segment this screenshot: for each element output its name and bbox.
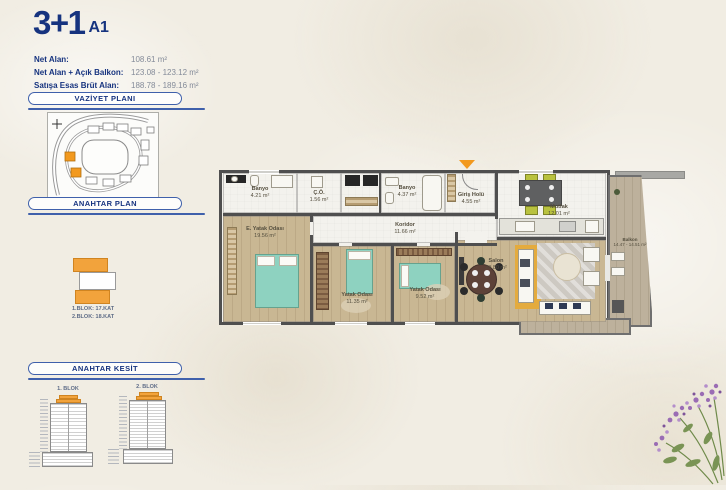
sofa-icon [518,249,534,303]
shelf-unit [345,197,378,206]
cushion [520,279,530,287]
window [405,322,435,326]
door-opening [310,222,313,235]
site-plan-drawing [48,113,158,197]
label-yatak1: Yatak Odası 11.35 m² [329,292,385,305]
wardrobe [316,252,329,310]
chair-icon [460,287,468,295]
wall [391,246,394,322]
pillow [279,256,297,266]
room-name: Mutfak [535,204,583,211]
label-e-yatak: E. Yatak Odası 19.56 m² [233,226,297,239]
dining-table-icon [519,180,562,206]
divider [28,213,205,215]
info-row-net-alan: Net Alan: 108.61 m² [34,53,199,66]
cooktop-icon [559,221,576,232]
plate-icon [484,282,490,288]
window [335,322,367,326]
room-area: 4.21 m² [235,193,285,200]
key-plan-caption: 1.BLOK: 17.KAT 2.BLOK: 18.KAT [72,306,114,322]
kitchen-sink-icon [515,221,535,232]
block1-podium-section [42,452,93,467]
window [249,170,279,174]
plate-icon [472,282,478,288]
chair-icon [460,263,468,271]
wall [379,173,381,213]
window [519,170,553,174]
armchair-icon [583,271,600,286]
opening-to-salon [465,232,487,243]
entrance-arrow-icon [459,160,475,169]
room-area: 19.56 m² [233,233,297,240]
room-name: Banyo [385,185,429,192]
label-salon: Salon 29.80 m² [474,258,518,271]
info-value: 108.61 m² [131,53,167,66]
pillow [257,256,275,266]
washer-icon [311,176,323,188]
block1-podium-ticks [29,452,40,467]
site-plan-map [47,112,159,198]
block2-podium-ticks [108,449,119,464]
plate-icon [549,185,554,190]
key-plan-panel-title: ANAHTAR PLAN [28,197,182,210]
site-plan-panel-title: VAZİYET PLANI [28,92,182,105]
plan-variant-label: A1 [88,19,108,37]
closet-unit [363,175,378,186]
key-plan-caption-line2: 2.BLOK: 18.KAT [72,314,114,322]
block1-label: 1. BLOK [48,386,88,392]
label-mutfak: Mutfak 12.01 m² [535,204,583,217]
cushion [520,259,530,267]
area-info-block: Net Alan: 108.61 m² Net Alan + Açık Balk… [34,53,199,92]
key-plan-block-bottom [75,290,110,304]
label-co: Ç.Ö. 1.56 m² [299,190,339,203]
wardrobe [396,248,452,256]
closet-unit [345,175,360,186]
chair-icon [495,287,503,295]
divider [28,378,205,380]
info-label: Satışa Esas Brüt Alan: [34,79,131,92]
key-plan-block-top [73,258,108,272]
room-area: 4.55 m² [447,199,495,206]
room-area: 29.80 m² [474,265,518,272]
info-label: Net Alan + Açık Balkon: [34,66,131,79]
plant-icon [614,189,620,195]
floor-plan: Banyo 4.21 m² Ç.Ö. 1.56 m² Banyo 4.37 m²… [219,159,689,341]
room-name: Giriş Holü [447,192,495,199]
room-name: E. Yatak Odası [233,226,297,233]
ottoman-icon [553,253,581,281]
balcony-door [605,255,610,281]
cushion [545,303,553,309]
tv-unit-icon [459,257,464,285]
chair-icon [477,294,485,302]
decorative-plant [618,368,726,485]
info-value: 188.78 - 189.16 m² [131,79,199,92]
brochure-page: { "colors": { "accent_blue": "#16337f", … [0,0,726,485]
room-name: Yatak Odası [397,287,453,294]
room-area: 14.47 - 14.51 m² [607,242,653,247]
info-label: Net Alan: [34,53,131,66]
pillow [348,251,371,260]
label-koridor: Koridor 11.66 m² [379,222,431,235]
label-balkon: Balkon 14.47 - 14.51 m² [607,237,653,248]
wall [223,213,497,216]
window [243,322,281,326]
room-area: 11.35 m² [329,299,385,306]
sink-icon [231,176,238,182]
page-title: 3+1 A1 [33,6,109,39]
info-row-brut-alan: Satışa Esas Brüt Alan: 188.78 - 189.16 m… [34,79,199,92]
key-section-panel-title: ANAHTAR KESİT [28,362,182,375]
cushion [573,303,581,309]
plate-icon [525,197,530,202]
label-banyo2: Banyo 4.37 m² [385,185,429,198]
lounge-chair-icon [611,252,625,261]
label-giris: Giriş Holü 4.55 m² [447,192,495,205]
room-name: Yatak Odası [329,292,385,299]
door-opening [417,243,430,246]
divider [28,108,205,110]
cushion [559,303,567,309]
wall [497,237,606,240]
room-name: Salon [474,258,518,265]
block2-label: 2. BLOK [127,384,167,390]
room-area: 9.52 m² [397,294,453,301]
info-row-net-alan-balkon: Net Alan + Açık Balkon: 123.08 - 123.12 … [34,66,199,79]
plate-icon [549,197,554,202]
plan-type-title: 3+1 [33,6,84,39]
planter-icon [612,300,624,313]
compass-icon [52,119,62,129]
block2-podium-section [123,449,173,464]
pillow [401,265,409,287]
room-area: 12.01 m² [535,211,583,218]
armchair-icon [583,247,600,262]
label-banyo1: Banyo 4.21 m² [235,186,285,199]
key-plan-block-middle [79,272,116,290]
room-area: 1.56 m² [299,197,339,204]
room-name: Koridor [379,222,431,229]
block1-floor-ticks [40,399,48,452]
room-area: 11.66 m² [379,229,431,236]
door-opening [339,243,352,246]
wall [495,173,498,219]
room-area: 4.37 m² [385,192,429,199]
info-value: 123.08 - 123.12 m² [131,66,199,79]
plate-icon [525,185,530,190]
wall [455,232,458,322]
fridge-icon [585,220,599,233]
lounge-chair-icon [611,267,625,276]
key-plan-caption-line1: 1.BLOK: 17.KAT [72,306,114,314]
block2-tower-section [129,400,166,449]
room-name: Ç.Ö. [299,190,339,197]
block1-tower-section [50,403,87,452]
block2-floor-ticks [119,396,127,449]
label-yatak2: Yatak Odası 9.52 m² [397,287,453,300]
room-name: Banyo [235,186,285,193]
